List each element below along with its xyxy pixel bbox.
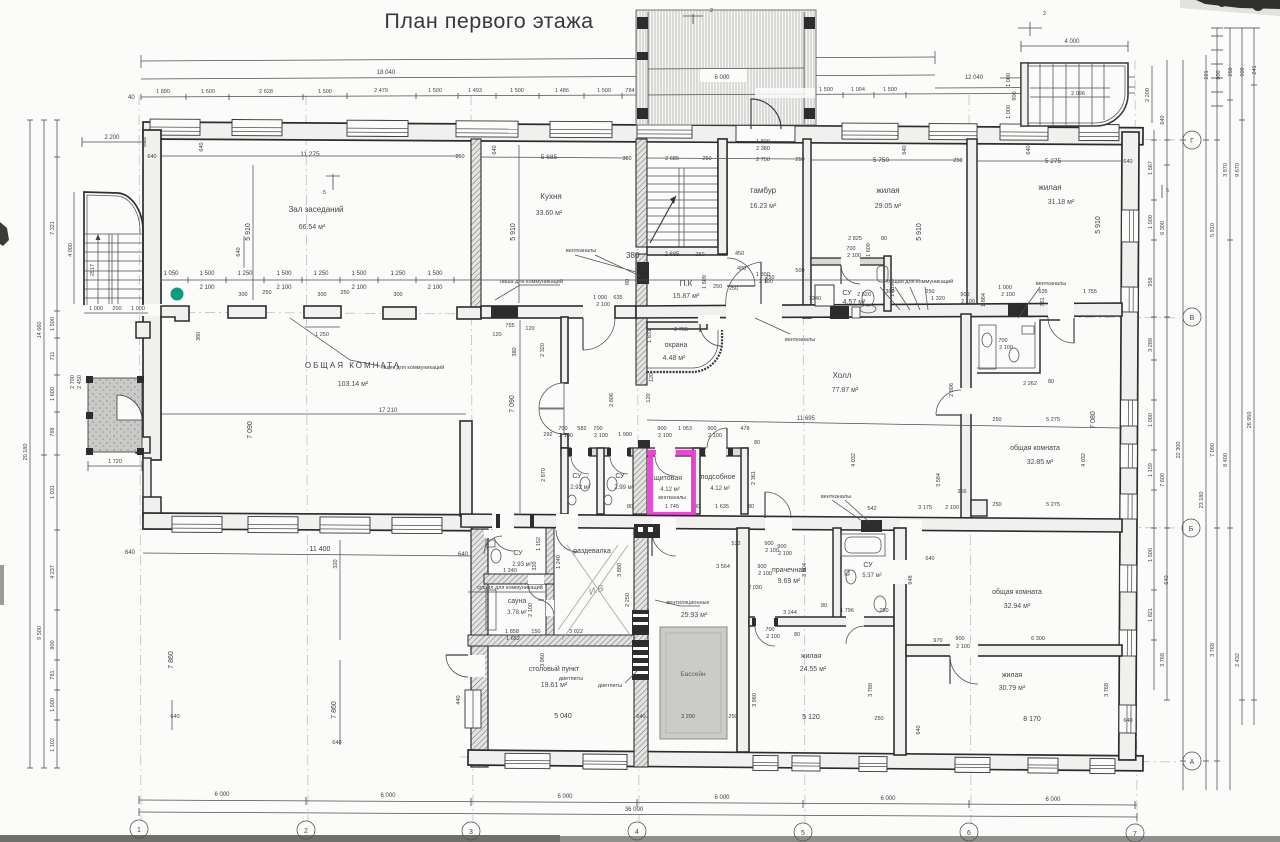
svg-text:800: 800	[1216, 70, 1222, 79]
svg-text:32.94 м²: 32.94 м²	[1004, 603, 1031, 610]
svg-text:640: 640	[1026, 145, 1032, 154]
svg-text:7 860: 7 860	[168, 651, 175, 669]
svg-text:103.14 м²: 103.14 м²	[338, 381, 369, 388]
svg-text:250: 250	[992, 417, 1001, 423]
svg-text:ниша для коммуникаций: ниша для коммуникаций	[500, 278, 563, 285]
svg-text:1 250: 1 250	[390, 271, 406, 277]
svg-text:80: 80	[627, 504, 633, 510]
svg-text:3 244: 3 244	[783, 610, 797, 616]
svg-text:2 479: 2 479	[374, 88, 388, 94]
svg-text:5: 5	[1166, 188, 1169, 194]
svg-text:542: 542	[867, 506, 876, 512]
svg-text:784: 784	[625, 88, 634, 94]
svg-text:7 860: 7 860	[331, 701, 338, 719]
svg-text:640: 640	[147, 154, 156, 160]
svg-text:5 910: 5 910	[1095, 216, 1102, 234]
svg-text:2 450: 2 450	[77, 375, 83, 389]
svg-text:640: 640	[636, 714, 645, 720]
svg-text:5 120: 5 120	[802, 714, 820, 721]
svg-text:2 200: 2 200	[1145, 88, 1151, 102]
svg-text:2 806: 2 806	[609, 393, 615, 407]
svg-text:2 100: 2 100	[999, 345, 1013, 351]
svg-text:3 564: 3 564	[716, 564, 730, 570]
svg-text:948: 948	[908, 575, 914, 584]
svg-text:СУ: СУ	[842, 290, 852, 297]
svg-text:1 858: 1 858	[505, 629, 519, 635]
svg-text:66.54 м²: 66.54 м²	[299, 224, 326, 231]
svg-text:2 361: 2 361	[751, 471, 757, 485]
svg-text:900: 900	[1240, 67, 1246, 76]
svg-text:1 240: 1 240	[503, 568, 517, 574]
svg-text:2 100: 2 100	[559, 433, 573, 439]
svg-text:5 275: 5 275	[1045, 158, 1062, 165]
svg-text:7 090: 7 090	[509, 395, 516, 413]
svg-text:2 100: 2 100	[658, 433, 672, 439]
svg-text:2 685: 2 685	[665, 156, 679, 162]
svg-text:480: 480	[737, 266, 746, 272]
svg-text:6 000: 6 000	[557, 794, 573, 800]
svg-text:33.60 м²: 33.60 м²	[536, 210, 563, 217]
svg-text:19.61 м²: 19.61 м²	[541, 682, 568, 689]
svg-text:635: 635	[613, 295, 622, 301]
svg-text:1 500: 1 500	[351, 271, 367, 277]
svg-text:36 000: 36 000	[625, 807, 644, 813]
svg-text:Холл: Холл	[833, 371, 852, 380]
svg-text:2 250: 2 250	[625, 593, 631, 607]
svg-text:общая комната: общая комната	[992, 588, 1042, 596]
svg-text:1 864: 1 864	[981, 293, 987, 307]
svg-text:700: 700	[998, 338, 1007, 344]
svg-text:2.93 м²: 2.93 м²	[512, 562, 531, 568]
svg-text:635: 635	[1038, 289, 1047, 295]
svg-text:8 400: 8 400	[1223, 453, 1229, 467]
svg-text:1 890: 1 890	[156, 89, 170, 95]
svg-text:СУ: СУ	[572, 473, 582, 480]
svg-text:1240: 1240	[809, 296, 821, 302]
svg-text:320: 320	[333, 559, 339, 568]
svg-text:5 275: 5 275	[1046, 502, 1060, 508]
svg-text:900: 900	[657, 426, 666, 432]
svg-text:1 500: 1 500	[819, 87, 833, 93]
svg-text:1 796: 1 796	[840, 608, 854, 614]
svg-text:700: 700	[593, 426, 602, 432]
svg-text:2 100: 2 100	[594, 433, 608, 439]
svg-text:250: 250	[728, 714, 737, 720]
svg-text:1 000: 1 000	[1006, 105, 1012, 119]
svg-text:11 400: 11 400	[310, 546, 331, 553]
svg-text:1 031: 1 031	[50, 485, 56, 499]
svg-text:640: 640	[458, 552, 469, 558]
svg-text:сауна: сауна	[508, 598, 527, 605]
svg-text:Г: Г	[1190, 138, 1194, 145]
svg-text:раздевалка: раздевалка	[573, 548, 611, 555]
svg-text:1 152: 1 152	[536, 537, 542, 551]
svg-text:жилая: жилая	[1038, 183, 1061, 192]
svg-text:1 609: 1 609	[866, 243, 872, 257]
svg-text:2 262: 2 262	[1023, 381, 1037, 387]
svg-text:4.12 м²: 4.12 м²	[710, 486, 729, 492]
svg-text:1 000: 1 000	[593, 295, 607, 301]
svg-text:2 700: 2 700	[70, 375, 76, 389]
svg-text:7 600: 7 600	[1160, 473, 1166, 487]
svg-text:380: 380	[512, 347, 518, 356]
svg-text:30.79 м²: 30.79 м²	[999, 685, 1026, 692]
svg-text:2 100: 2 100	[199, 285, 215, 291]
svg-text:755: 755	[505, 323, 514, 329]
svg-text:6 300: 6 300	[1031, 636, 1045, 642]
svg-text:250: 250	[702, 156, 711, 162]
svg-text:2 100: 2 100	[427, 285, 443, 291]
svg-text:900: 900	[707, 426, 716, 432]
svg-text:11 695: 11 695	[797, 416, 816, 422]
svg-text:ОБЩАЯ КОМНАТА: ОБЩАЯ КОМНАТА	[305, 361, 401, 370]
svg-text:17 210: 17 210	[379, 408, 398, 414]
svg-text:План первого этажа: План первого этажа	[384, 9, 593, 33]
svg-text:1 500: 1 500	[50, 317, 56, 331]
svg-text:тамбур: тамбур	[750, 186, 777, 195]
svg-text:жилая: жилая	[1002, 672, 1023, 679]
svg-text:18 040: 18 040	[377, 70, 396, 76]
svg-text:29.05 м²: 29.05 м²	[875, 203, 902, 210]
svg-text:700: 700	[558, 426, 567, 432]
svg-text:Бассейн: Бассейн	[680, 670, 706, 678]
svg-text:958: 958	[1148, 277, 1154, 286]
svg-text:вентканалы: вентканалы	[658, 495, 686, 501]
svg-text:25.93 м²: 25.93 м²	[681, 612, 708, 619]
svg-text:366: 366	[957, 489, 966, 495]
svg-text:970: 970	[933, 638, 942, 644]
svg-text:6 000: 6 000	[714, 75, 730, 81]
svg-text:1 240: 1 240	[556, 555, 562, 569]
svg-text:11 275: 11 275	[300, 151, 320, 158]
svg-text:2 100: 2 100	[961, 299, 975, 305]
svg-text:1 250: 1 250	[313, 271, 329, 277]
svg-text:1 500: 1 500	[597, 88, 611, 94]
svg-text:32.85 м²: 32.85 м²	[1027, 459, 1054, 466]
svg-text:292: 292	[543, 432, 552, 438]
svg-text:1 635: 1 635	[715, 504, 729, 510]
svg-text:2 100: 2 100	[847, 253, 861, 259]
svg-text:3 022: 3 022	[569, 629, 583, 635]
svg-text:781: 781	[50, 670, 56, 679]
svg-text:300: 300	[238, 292, 247, 298]
svg-text:1 500: 1 500	[318, 89, 332, 95]
svg-text:22 300: 22 300	[1176, 442, 1182, 459]
svg-text:подсобное: подсобное	[701, 473, 736, 481]
svg-text:1 486: 1 486	[555, 88, 569, 94]
svg-text:5: 5	[323, 190, 326, 196]
svg-text:вентканалы: вентканалы	[1036, 281, 1066, 287]
svg-text:2.99 м²: 2.99 м²	[614, 485, 633, 491]
svg-text:4 000: 4 000	[1064, 39, 1080, 45]
svg-text:1 320: 1 320	[931, 296, 945, 302]
svg-text:1 755: 1 755	[1083, 289, 1097, 295]
svg-text:16.23 м²: 16.23 м²	[750, 203, 777, 210]
svg-text:прачечная: прачечная	[772, 567, 806, 574]
svg-text:жилая: жилая	[876, 186, 899, 195]
svg-text:2 100: 2 100	[528, 603, 534, 617]
svg-text:5 910: 5 910	[510, 223, 517, 241]
svg-text:вентканалы: вентканалы	[566, 248, 596, 254]
svg-text:5: 5	[801, 830, 805, 837]
svg-text:2 100: 2 100	[708, 433, 722, 439]
svg-text:900: 900	[1012, 91, 1018, 100]
svg-text:1 250: 1 250	[237, 271, 253, 277]
svg-text:700: 700	[765, 627, 774, 633]
svg-text:2 030: 2 030	[748, 585, 762, 591]
svg-text:640: 640	[1123, 718, 1132, 724]
svg-text:9 670: 9 670	[1235, 163, 1241, 177]
svg-text:2 100: 2 100	[758, 571, 772, 577]
svg-text:80: 80	[1048, 379, 1054, 385]
svg-text:2 100: 2 100	[778, 551, 792, 557]
svg-text:2 200: 2 200	[104, 135, 120, 141]
svg-text:3 290: 3 290	[681, 714, 695, 720]
svg-text:4 000: 4 000	[68, 243, 74, 257]
svg-text:5 275: 5 275	[1046, 417, 1060, 423]
svg-text:П.К: П.К	[680, 279, 693, 288]
svg-text:5.37 м²: 5.37 м²	[862, 573, 881, 579]
svg-text:1 004: 1 004	[851, 87, 865, 93]
svg-text:Кухня: Кухня	[540, 192, 561, 201]
svg-text:2517: 2517	[90, 264, 96, 276]
svg-text:2 100: 2 100	[596, 302, 610, 308]
svg-text:1 500: 1 500	[1148, 215, 1154, 229]
svg-text:1 053: 1 053	[678, 426, 692, 432]
svg-text:250: 250	[953, 158, 962, 164]
svg-text:200: 200	[112, 306, 121, 312]
svg-text:1: 1	[137, 827, 141, 834]
svg-text:640: 640	[492, 145, 498, 154]
svg-text:640: 640	[125, 550, 136, 556]
svg-text:2 620: 2 620	[857, 292, 871, 298]
svg-text:1 652: 1 652	[506, 636, 520, 642]
svg-text:3: 3	[469, 829, 473, 836]
svg-text:6 000: 6 000	[214, 792, 230, 798]
svg-text:2 806: 2 806	[949, 383, 955, 397]
svg-text:3 768: 3 768	[1104, 683, 1110, 697]
svg-text:5 040: 5 040	[554, 713, 572, 720]
svg-text:300: 300	[885, 289, 894, 295]
svg-text:2 100: 2 100	[276, 285, 292, 291]
svg-text:2.92 м²: 2.92 м²	[570, 485, 589, 491]
svg-text:80: 80	[881, 236, 887, 242]
svg-text:4 032: 4 032	[851, 453, 857, 467]
svg-text:380: 380	[622, 156, 631, 162]
svg-text:1 500: 1 500	[883, 87, 897, 93]
svg-text:1 800: 1 800	[756, 139, 770, 145]
svg-text:4.12 м²: 4.12 м²	[660, 487, 679, 493]
svg-text:5 750: 5 750	[873, 157, 890, 164]
svg-text:250: 250	[262, 290, 271, 296]
svg-text:3 960: 3 960	[540, 653, 546, 667]
svg-text:2 765: 2 765	[674, 327, 688, 333]
svg-text:1 567: 1 567	[1148, 161, 1154, 175]
svg-text:24.55 м²: 24.55 м²	[800, 666, 827, 673]
svg-text:1 600: 1 600	[50, 387, 56, 401]
svg-text:900: 900	[955, 636, 964, 642]
svg-text:260: 260	[1228, 67, 1234, 76]
svg-text:1 500: 1 500	[427, 271, 443, 277]
svg-text:1 831: 1 831	[647, 329, 653, 343]
svg-text:2 870: 2 870	[541, 468, 547, 482]
svg-text:1 000: 1 000	[998, 285, 1012, 291]
svg-text:640: 640	[199, 142, 205, 151]
svg-text:250: 250	[925, 289, 934, 295]
svg-text:3 788: 3 788	[868, 683, 874, 697]
svg-text:8 170: 8 170	[1023, 716, 1041, 723]
svg-text:80: 80	[754, 440, 760, 446]
svg-text:2 750: 2 750	[756, 157, 770, 163]
svg-text:120: 120	[646, 393, 652, 402]
svg-text:640: 640	[1160, 115, 1166, 124]
svg-text:500: 500	[795, 268, 804, 274]
svg-text:900: 900	[764, 541, 773, 547]
svg-text:241: 241	[1252, 65, 1258, 74]
svg-text:4 032: 4 032	[1081, 453, 1087, 467]
svg-text:250: 250	[340, 290, 349, 296]
svg-text:23 180: 23 180	[1199, 492, 1205, 509]
svg-text:380: 380	[196, 332, 202, 341]
svg-text:СУ: СУ	[615, 473, 625, 480]
svg-text:12 040: 12 040	[965, 75, 984, 81]
svg-text:5 910: 5 910	[245, 223, 252, 241]
svg-text:2 320: 2 320	[540, 343, 546, 357]
svg-text:4.57 м²: 4.57 м²	[843, 299, 866, 306]
svg-text:14 660: 14 660	[37, 322, 43, 339]
svg-text:380: 380	[626, 251, 640, 260]
svg-text:640: 640	[916, 725, 922, 734]
svg-text:щитовая: щитовая	[654, 475, 682, 482]
svg-text:640: 640	[925, 556, 934, 562]
svg-text:1 159: 1 159	[1148, 463, 1154, 477]
svg-text:700: 700	[846, 246, 855, 252]
svg-text:250: 250	[795, 157, 804, 163]
svg-text:4: 4	[635, 829, 639, 836]
svg-text:31.18 м²: 31.18 м²	[1048, 199, 1075, 206]
svg-text:9 500: 9 500	[37, 626, 43, 640]
svg-text:478: 478	[740, 426, 749, 432]
svg-text:1 000: 1 000	[1006, 73, 1012, 87]
svg-text:80: 80	[625, 279, 631, 285]
svg-text:7 090: 7 090	[1210, 443, 1216, 457]
svg-text:2 100: 2 100	[766, 634, 780, 640]
svg-text:26 950: 26 950	[1247, 412, 1253, 429]
svg-text:1 500: 1 500	[428, 88, 442, 94]
svg-text:900: 900	[960, 292, 969, 298]
svg-text:диетпиты: диетпиты	[598, 683, 622, 689]
svg-text:В: В	[1190, 315, 1195, 322]
svg-text:1 000: 1 000	[131, 306, 145, 312]
svg-text:1 500: 1 500	[50, 698, 56, 712]
svg-text:640: 640	[902, 145, 908, 154]
svg-text:4.48 м²: 4.48 м²	[663, 355, 686, 362]
svg-text:6 300: 6 300	[1160, 221, 1166, 235]
svg-text:7 090: 7 090	[247, 421, 254, 439]
svg-text:250: 250	[874, 716, 883, 722]
svg-text:40: 40	[128, 95, 135, 101]
svg-text:СУ: СУ	[513, 550, 523, 557]
svg-text:250: 250	[695, 252, 704, 258]
svg-text:1 500: 1 500	[276, 271, 292, 277]
svg-text:2 100: 2 100	[351, 285, 367, 291]
svg-text:3 880: 3 880	[617, 563, 623, 577]
svg-text:150: 150	[531, 629, 540, 635]
svg-text:2 100: 2 100	[1001, 292, 1015, 298]
svg-text:1 500: 1 500	[1148, 548, 1154, 562]
svg-text:2 825: 2 825	[848, 236, 862, 242]
svg-text:640: 640	[1123, 159, 1132, 165]
svg-text:250: 250	[879, 608, 888, 614]
svg-text:2: 2	[304, 828, 308, 835]
svg-text:711: 711	[50, 352, 56, 361]
svg-text:3 768: 3 768	[1160, 653, 1166, 667]
svg-text:781: 781	[1040, 297, 1046, 306]
svg-text:80: 80	[748, 504, 754, 510]
svg-text:221: 221	[1204, 70, 1210, 79]
svg-text:1 493: 1 493	[468, 88, 482, 94]
svg-text:1 609: 1 609	[702, 275, 708, 289]
svg-text:3 970: 3 970	[1223, 163, 1229, 177]
svg-text:2 380: 2 380	[756, 146, 770, 152]
svg-text:2 096: 2 096	[1071, 91, 1085, 97]
svg-text:788: 788	[50, 427, 56, 436]
svg-text:7 321: 7 321	[50, 221, 56, 235]
svg-text:80: 80	[794, 632, 800, 638]
svg-text:300: 300	[317, 292, 326, 298]
svg-text:440: 440	[456, 695, 462, 704]
svg-text:3 584: 3 584	[936, 473, 942, 487]
svg-text:1 720: 1 720	[108, 459, 122, 465]
svg-text:3 288: 3 288	[1148, 338, 1154, 352]
svg-text:вентканалы: вентканалы	[785, 337, 815, 343]
svg-text:А: А	[1190, 759, 1195, 766]
svg-text:6 000: 6 000	[880, 796, 896, 802]
svg-text:6 000: 6 000	[380, 793, 396, 799]
svg-text:9.69 м²: 9.69 м²	[778, 578, 801, 585]
svg-text:250: 250	[729, 286, 738, 292]
svg-text:вентканалы: вентканалы	[821, 494, 851, 500]
svg-text:столовый пункт: столовый пункт	[529, 665, 580, 673]
svg-text:3.78 м²: 3.78 м²	[507, 610, 526, 616]
svg-text:5 910: 5 910	[916, 223, 923, 241]
svg-text:582: 582	[577, 426, 586, 432]
svg-text:2: 2	[1043, 11, 1046, 17]
svg-text:Б: Б	[1189, 526, 1194, 533]
svg-text:20 180: 20 180	[23, 444, 29, 461]
svg-text:640: 640	[236, 247, 242, 256]
svg-text:77.87 м²: 77.87 м²	[832, 387, 859, 394]
svg-text:1 050: 1 050	[163, 271, 179, 277]
svg-text:250: 250	[992, 502, 1001, 508]
svg-text:640: 640	[1164, 575, 1170, 584]
svg-text:2 432: 2 432	[1235, 653, 1241, 667]
svg-text:450: 450	[735, 251, 744, 257]
svg-text:7 080: 7 080	[1090, 411, 1097, 429]
svg-text:охрана: охрана	[665, 342, 688, 349]
svg-text:2 100: 2 100	[956, 644, 970, 650]
svg-text:1 990: 1 990	[618, 432, 632, 438]
svg-text:1 500: 1 500	[199, 271, 215, 277]
svg-text:2: 2	[710, 8, 713, 14]
svg-text:3 175: 3 175	[918, 505, 932, 511]
svg-text:900: 900	[777, 544, 786, 550]
svg-text:80: 80	[821, 603, 827, 609]
svg-text:300: 300	[393, 292, 402, 298]
svg-text:320: 320	[532, 561, 538, 570]
svg-text:1 000: 1 000	[89, 306, 103, 312]
svg-text:1 745: 1 745	[665, 504, 679, 510]
